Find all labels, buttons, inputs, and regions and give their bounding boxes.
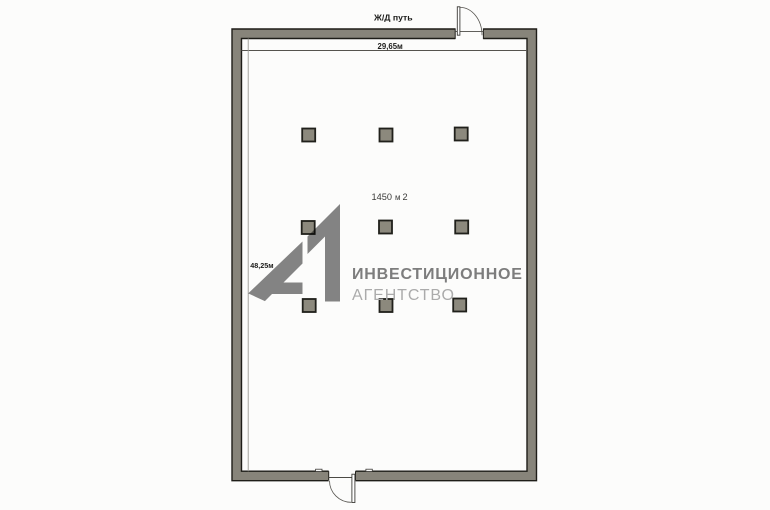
svg-text:АГЕНТСТВО: АГЕНТСТВО [352,287,455,304]
svg-text:Ж/Д путь: Ж/Д путь [373,13,413,23]
svg-text:29,65м: 29,65м [378,42,404,51]
svg-text:48,25м: 48,25м [250,261,273,270]
svg-text:ИНВЕСТИЦИОННОЕ: ИНВЕСТИЦИОННОЕ [352,266,523,283]
svg-text:1450м2: 1450м2 [372,192,408,202]
